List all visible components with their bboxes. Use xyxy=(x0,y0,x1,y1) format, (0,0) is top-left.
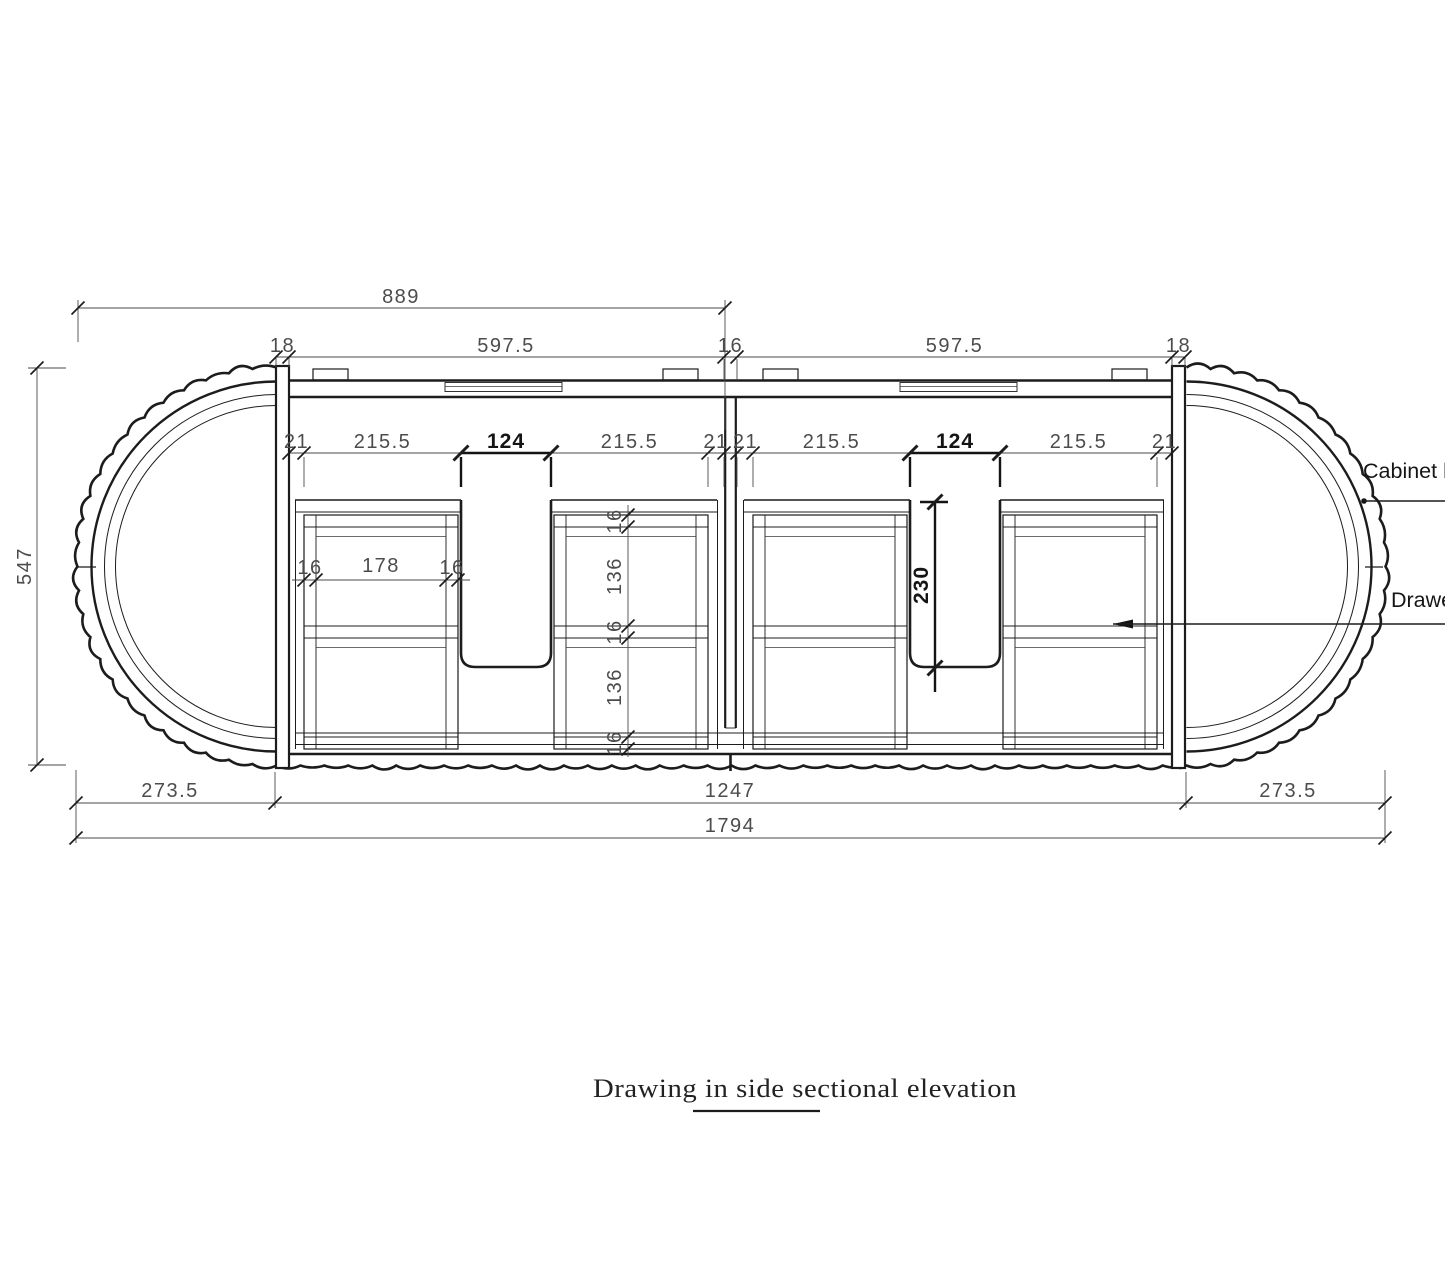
dim-215-c: 215.5 xyxy=(803,431,861,453)
drawing-page: 889 18 597.5 16 597.5 18 21 215.5 124 21… xyxy=(0,0,1445,1262)
dim-1247: 1247 xyxy=(705,780,756,802)
top-recess-right xyxy=(900,383,1017,392)
dim-stack-136-a: 136 xyxy=(604,557,626,595)
drawer-stack xyxy=(554,515,708,749)
dim-16-inner-right: 16 xyxy=(439,557,464,579)
carcass xyxy=(276,366,1185,771)
drawer-area-top-band xyxy=(295,500,1164,512)
right-cap-thin-arc-1 xyxy=(1187,395,1359,739)
drawer-callout-label: Drawer xyxy=(1391,588,1445,612)
dim-18-left: 18 xyxy=(270,335,295,357)
right-cap-thin-arc-2 xyxy=(1187,406,1348,728)
cabinet-callout-label: Cabinet body xyxy=(1363,459,1445,483)
drawer-stack xyxy=(1003,515,1157,749)
dim-273-left: 273.5 xyxy=(141,780,199,802)
dim-215-d: 215.5 xyxy=(1050,431,1108,453)
dim-124-left: 124 xyxy=(487,430,525,453)
dim-547: 547 xyxy=(14,547,36,585)
dim-889: 889 xyxy=(382,286,420,308)
dim-stack-136-b: 136 xyxy=(604,668,626,706)
dim-21-a: 21 xyxy=(284,431,309,453)
dim-215-a: 215.5 xyxy=(354,431,412,453)
sectional-elevation-drawing: 889 18 597.5 16 597.5 18 21 215.5 124 21… xyxy=(0,0,1445,1262)
dim-16-center: 16 xyxy=(718,335,743,357)
drawer-stacks xyxy=(304,515,1157,749)
dim-597-right: 597.5 xyxy=(926,335,984,357)
dim-21-d: 21 xyxy=(1152,431,1177,453)
dim-178: 178 xyxy=(362,555,400,577)
dim-597-left: 597.5 xyxy=(477,335,535,357)
dim-21-c: 21 xyxy=(733,431,758,453)
left-cap-thin-arc-2 xyxy=(116,406,277,728)
top-recess-left xyxy=(445,383,562,392)
dim-18-right: 18 xyxy=(1166,335,1191,357)
dim-273-right: 273.5 xyxy=(1259,780,1317,802)
handle-notch-left xyxy=(461,500,551,667)
callouts: Cabinet body Drawer xyxy=(1113,459,1445,629)
left-cap-thin-arc-1 xyxy=(105,395,277,739)
top-block xyxy=(1112,369,1147,380)
dim-230: 230 xyxy=(910,566,933,604)
top-block xyxy=(663,369,698,380)
drawer-stack xyxy=(753,515,907,749)
dim-1794: 1794 xyxy=(705,815,756,837)
top-block xyxy=(763,369,798,380)
dim-16-inner-left: 16 xyxy=(297,557,322,579)
left-post xyxy=(276,366,289,768)
dim-stack-16-c: 16 xyxy=(604,730,626,755)
dim-stack-16-b: 16 xyxy=(604,619,626,644)
left-cap-thick-arc xyxy=(92,382,277,752)
dim-21-b: 21 xyxy=(703,431,728,453)
right-post xyxy=(1172,366,1185,768)
top-block xyxy=(313,369,348,380)
dim-124-right: 124 xyxy=(936,430,974,453)
drawing-title: Drawing in side sectional elevation xyxy=(593,1074,1017,1103)
drawer-stack xyxy=(304,515,458,749)
dim-stack-16-a: 16 xyxy=(604,508,626,533)
cabinet-scalloped-outline xyxy=(73,363,1389,769)
cap-inner-arcs xyxy=(76,382,1383,752)
right-cap-thick-arc xyxy=(1187,382,1372,752)
dim-215-b: 215.5 xyxy=(601,431,659,453)
